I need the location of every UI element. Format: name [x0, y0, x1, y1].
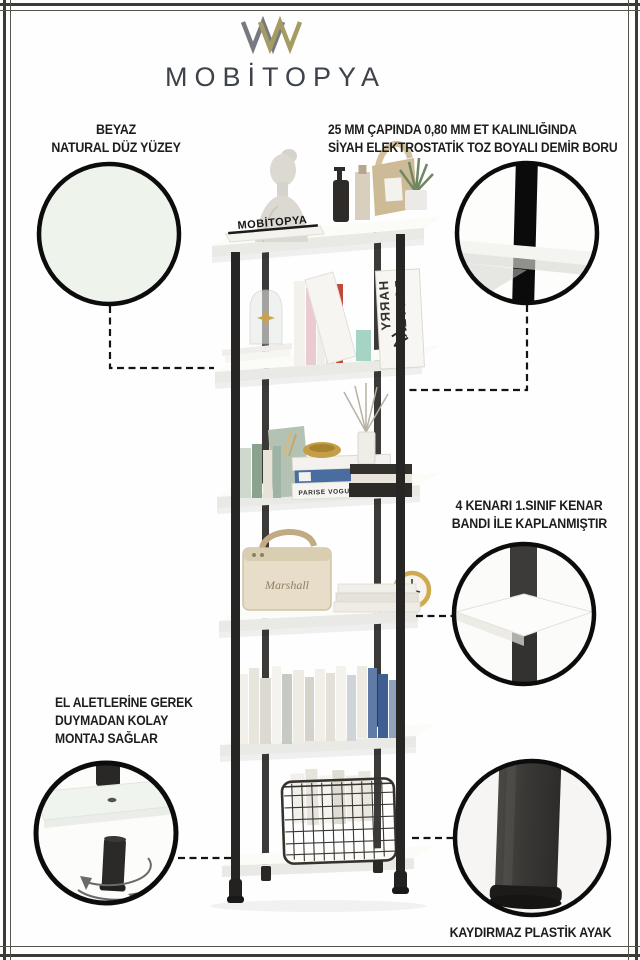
callout-edge-band-line2: BANDI İLE KAPLANMIŞTIR — [452, 515, 607, 533]
callout-surface: BEYAZ NATURAL DÜZ YÜZEY — [20, 121, 212, 157]
shelf5-items — [236, 666, 398, 744]
callout-pipe: 25 MM ÇAPINDA 0,80 MM ET KALINLIĞINDA Sİ… — [328, 121, 640, 157]
detail-circle-pipe — [450, 156, 610, 316]
callout-foot-line1: KAYDIRMAZ PLASTİK AYAK — [445, 924, 615, 942]
product-infographic: MOBİTOPYA — [0, 0, 640, 960]
speaker: Marshall — [243, 548, 331, 610]
detail-circle-assembly — [34, 760, 184, 910]
callout-surface-line1: BEYAZ — [28, 121, 205, 139]
callout-assembly: EL ALETLERİNE GEREK DUYMADAN KOLAY MONTA… — [55, 694, 208, 747]
speaker-brand-text: Marshall — [264, 578, 310, 592]
callout-surface-line2: NATURAL DÜZ YÜZEY — [28, 139, 205, 157]
detail-circle-edge-band — [450, 540, 600, 690]
callout-pipe-line1: 25 MM ÇAPINDA 0,80 MM ET KALINLIĞINDA — [328, 121, 617, 139]
shelf2-items: HARRY POTTER — [222, 269, 424, 369]
callout-assembly-line1: EL ALETLERİNE GEREK — [55, 694, 193, 712]
callout-foot: KAYDIRMAZ PLASTİK AYAK — [438, 924, 623, 942]
book-title-word1: HARRY — [376, 280, 394, 331]
callout-assembly-line2: DUYMADAN KOLAY — [55, 712, 193, 730]
callout-pipe-line2: SİYAH ELEKTROSTATİK TOZ BOYALI DEMİR BOR… — [328, 139, 617, 157]
detail-circle-foot — [450, 751, 615, 921]
callout-assembly-line3: MONTAJ SAĞLAR — [55, 730, 193, 748]
callout-edge-band-line1: 4 KENARI 1.SINIF KENAR — [452, 497, 607, 515]
detail-circle-surface — [39, 164, 179, 304]
callout-edge-band: 4 KENARI 1.SINIF KENAR BANDI İLE KAPLANM… — [445, 497, 613, 533]
connector-surface — [110, 306, 214, 368]
